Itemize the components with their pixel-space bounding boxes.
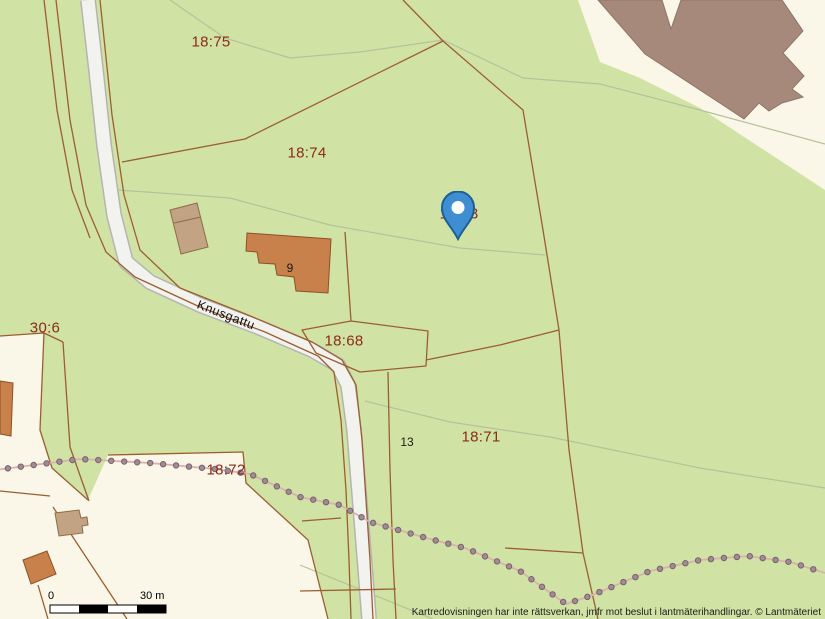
map-canvas[interactable]: 18:75 18:74 18:73 18:68 18:71 18:72 30:6… (0, 0, 825, 619)
map-pin-icon[interactable] (439, 191, 477, 241)
map-graphics (0, 0, 825, 619)
scale-bar-end-label: 30 m (140, 590, 164, 602)
scale-bar (50, 605, 166, 613)
building-left-edge (0, 381, 13, 436)
attribution-text: Kartredovisningen har inte rättsverkan, … (412, 607, 821, 618)
scale-bar-start-label: 0 (48, 590, 54, 602)
